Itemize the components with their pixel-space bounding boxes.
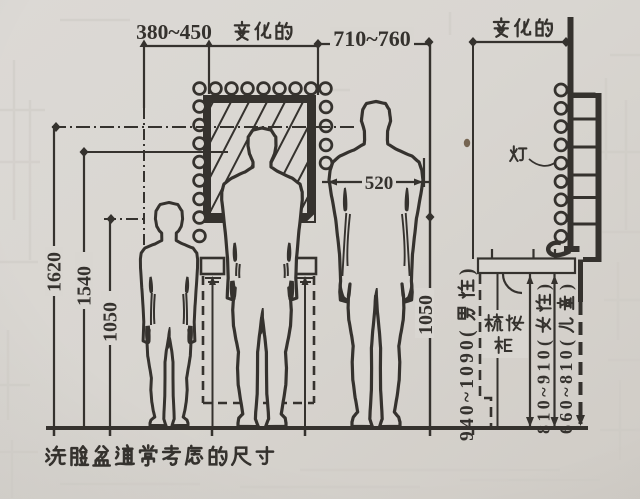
- svg-text:940~1090: 940~1090: [457, 337, 478, 441]
- svg-text:(: (: [556, 340, 577, 346]
- svg-text:1540: 1540: [74, 266, 96, 306]
- svg-text:(: (: [534, 340, 555, 346]
- svg-text:810~910: 810~910: [534, 347, 554, 434]
- svg-text:): ): [534, 284, 555, 290]
- svg-text:520: 520: [365, 173, 394, 194]
- svg-text:660~810: 660~810: [556, 347, 576, 434]
- svg-text:1620: 1620: [44, 252, 66, 292]
- svg-text:): ): [556, 284, 577, 290]
- svg-text:1050: 1050: [415, 295, 437, 335]
- svg-text:1050: 1050: [100, 302, 122, 342]
- svg-text:): ): [457, 269, 478, 276]
- svg-text:(: (: [457, 331, 478, 338]
- svg-text:710~760: 710~760: [333, 26, 410, 51]
- svg-text:380~450: 380~450: [136, 20, 212, 44]
